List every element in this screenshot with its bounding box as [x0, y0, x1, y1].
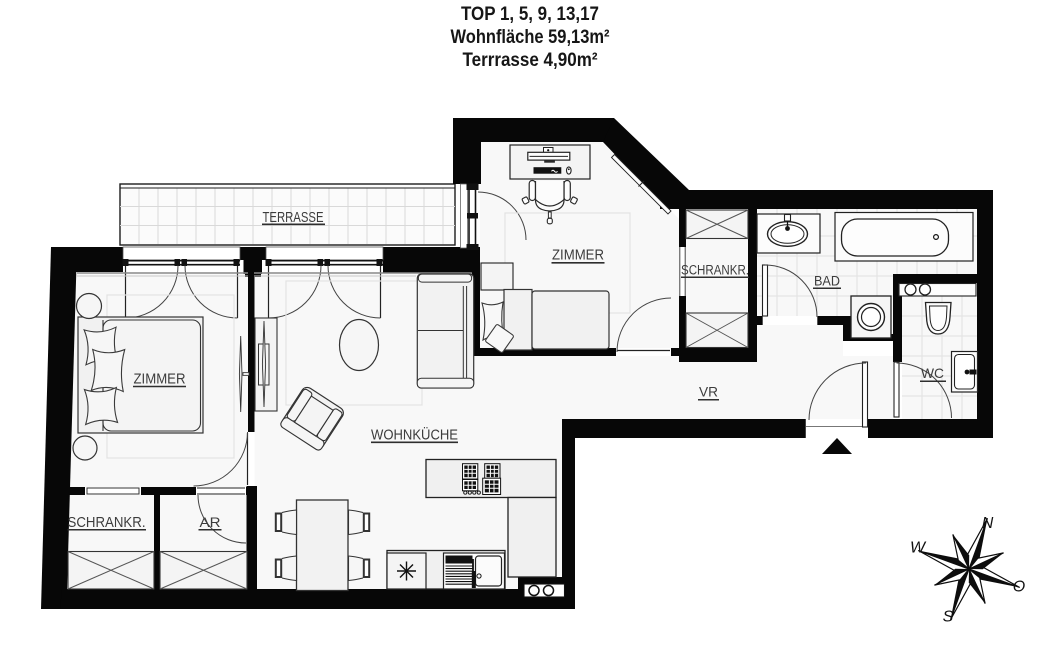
svg-text:AR: AR: [200, 514, 221, 530]
svg-text:N: N: [982, 515, 994, 532]
svg-text:VR: VR: [699, 384, 718, 400]
svg-text:WC: WC: [921, 365, 944, 381]
svg-text:S: S: [943, 609, 954, 626]
svg-text:SCHRANKR.: SCHRANKR.: [68, 515, 146, 531]
svg-text:SCHRANKR.: SCHRANKR.: [681, 263, 749, 278]
svg-text:TOP 1, 5, 9, 13,17: TOP 1, 5, 9, 13,17: [461, 4, 599, 25]
svg-text:ZIMMER: ZIMMER: [134, 371, 186, 388]
svg-text:Terrrasse 4,90m²: Terrrasse 4,90m²: [463, 50, 598, 71]
svg-text:W: W: [910, 540, 927, 557]
svg-text:Wohnfläche 59,13m²: Wohnfläche 59,13m²: [451, 27, 610, 48]
svg-text:ZIMMER: ZIMMER: [552, 247, 604, 264]
svg-text:O: O: [1013, 579, 1025, 596]
svg-text:BAD: BAD: [814, 273, 840, 289]
svg-text:TERRASSE: TERRASSE: [263, 209, 324, 226]
svg-text:WOHNKÜCHE: WOHNKÜCHE: [371, 426, 458, 444]
